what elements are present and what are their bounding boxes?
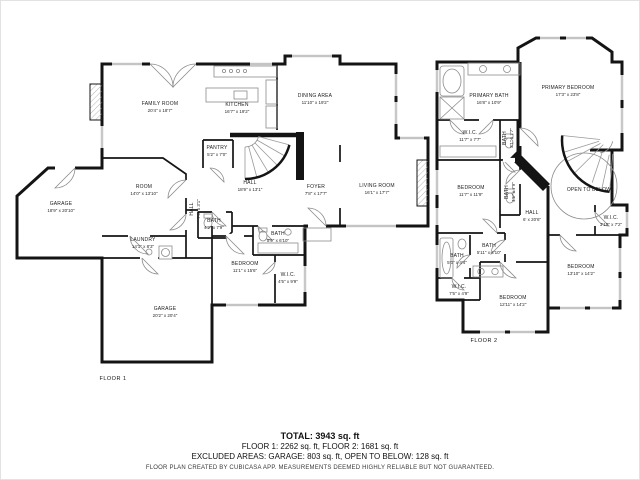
vanity (468, 63, 520, 75)
room-label-wic-f2-right: W.I.C.3'10" x 7'2" (600, 215, 622, 227)
tub (258, 243, 298, 253)
room-label-room: ROOM14'0" x 13'10" (130, 184, 157, 196)
kitchen-island (206, 88, 258, 102)
room-label-bath-f1-a: BATH4'2" x 7'9" (204, 218, 224, 230)
tub (440, 66, 464, 96)
floorplan-linework (0, 0, 640, 480)
floor1-caption: FLOOR 1 (99, 376, 126, 382)
room-label-bedroom-f2-center: BEDROOM12'11" x 14'2" (499, 295, 526, 307)
floor-areas-text: FLOOR 1: 2262 sq. ft, FLOOR 2: 1681 sq. … (0, 442, 640, 451)
kitchen-counter (214, 66, 277, 77)
disclaimer-text: FLOOR PLAN CREATED BY CUBICASA APP. MEAS… (0, 465, 640, 471)
room-label-hall-small-f1: HALL7'8" x 3'1" (189, 199, 201, 219)
front-porch (303, 228, 331, 241)
sink (504, 66, 511, 73)
room-label-kitchen: KITCHEN16'7" x 19'2" (225, 102, 250, 114)
floor2-stairs (551, 136, 617, 220)
room-label-pantry: PANTRY5'2" x 7'0" (206, 145, 227, 157)
room-label-hall-f2: HALL6' x 20'6" (523, 210, 541, 222)
room-label-bedroom-f2-right: BEDROOM13'10" x 14'2" (567, 264, 594, 276)
floor1-stairs (245, 137, 289, 179)
room-label-bedroom-f1: BEDROOM11'1" x 15'6" (231, 261, 258, 273)
room-label-living-room: LIVING ROOM16'1" x 17'7" (359, 183, 395, 195)
sink (478, 268, 484, 274)
floor2-caption: FLOOR 2 (470, 338, 497, 344)
room-label-bath-toilet-f2: BATH3'1" x 7'7" (502, 128, 514, 148)
room-label-open-to-below: OPEN TO BELOW (567, 187, 611, 194)
room-label-garage-2: GARAGE20'2" x 20'4" (153, 306, 178, 318)
room-label-garage-1: GARAGE18'9" x 20'10" (47, 201, 74, 213)
room-label-bedroom-f2-left: BEDROOM11'7" x 11'9" (457, 185, 484, 197)
oven-cabinet (266, 106, 277, 128)
room-label-family-room: FAMILY ROOM20'4" x 18'7" (142, 101, 178, 113)
sink (492, 268, 498, 274)
floor-plan-page: FAMILY ROOM20'4" x 18'7" KITCHEN16'7" x … (0, 0, 640, 480)
toilet (458, 239, 466, 249)
room-label-bath-f2-mid: BATH4'5" x 7'9" (504, 182, 516, 202)
room-label-bath-f1-b: BATH5'9" x 6'10" (267, 231, 289, 243)
room-label-foyer: FOYER7'8" x 17'7" (305, 184, 327, 196)
room-label-bath-f2-b: BATH5'11" x 4'10" (477, 243, 501, 255)
toilet (259, 231, 267, 241)
room-label-wic-primary: W.I.C.11'7" x 7'7" (459, 130, 481, 142)
fireplace-hatch (90, 84, 102, 120)
room-label-primary-bath: PRIMARY BATH16'8" x 10'9" (469, 93, 508, 105)
fridge (266, 80, 277, 104)
closet-shelf (440, 146, 496, 157)
total-area-text: TOTAL: 3943 sq. ft (0, 431, 640, 441)
stair-wall (296, 132, 304, 180)
sink (480, 66, 487, 73)
room-label-wic-f1: W.I.C.4'5" x 9'9" (278, 272, 298, 284)
washer (159, 246, 172, 259)
room-label-primary-bedroom: PRIMARY BEDROOM17'3" x 23'8" (542, 85, 595, 97)
room-label-dining-area: DINING AREA11'10" x 19'2" (298, 93, 332, 105)
room-label-hall-f1: HALL18'9" x 13'1" (238, 180, 263, 192)
laundry-sink (146, 249, 152, 255)
floor1-plan (17, 56, 428, 362)
excluded-areas-text: EXCLUDED AREAS: GARAGE: 803 sq. ft, OPEN… (0, 452, 640, 461)
room-label-wic-f2-bottom: W.I.C.7'5" x 4'9" (449, 284, 469, 296)
window-seat-hatch (417, 160, 428, 206)
room-label-bath-f2-a: BATH5'0" x 4'4" (447, 253, 467, 265)
floor1-fixtures (90, 66, 428, 259)
footer-summary: TOTAL: 3943 sq. ft FLOOR 1: 2262 sq. ft,… (0, 431, 640, 471)
room-label-laundry: LAUNDRY14'1" x 8'3" (130, 237, 155, 249)
